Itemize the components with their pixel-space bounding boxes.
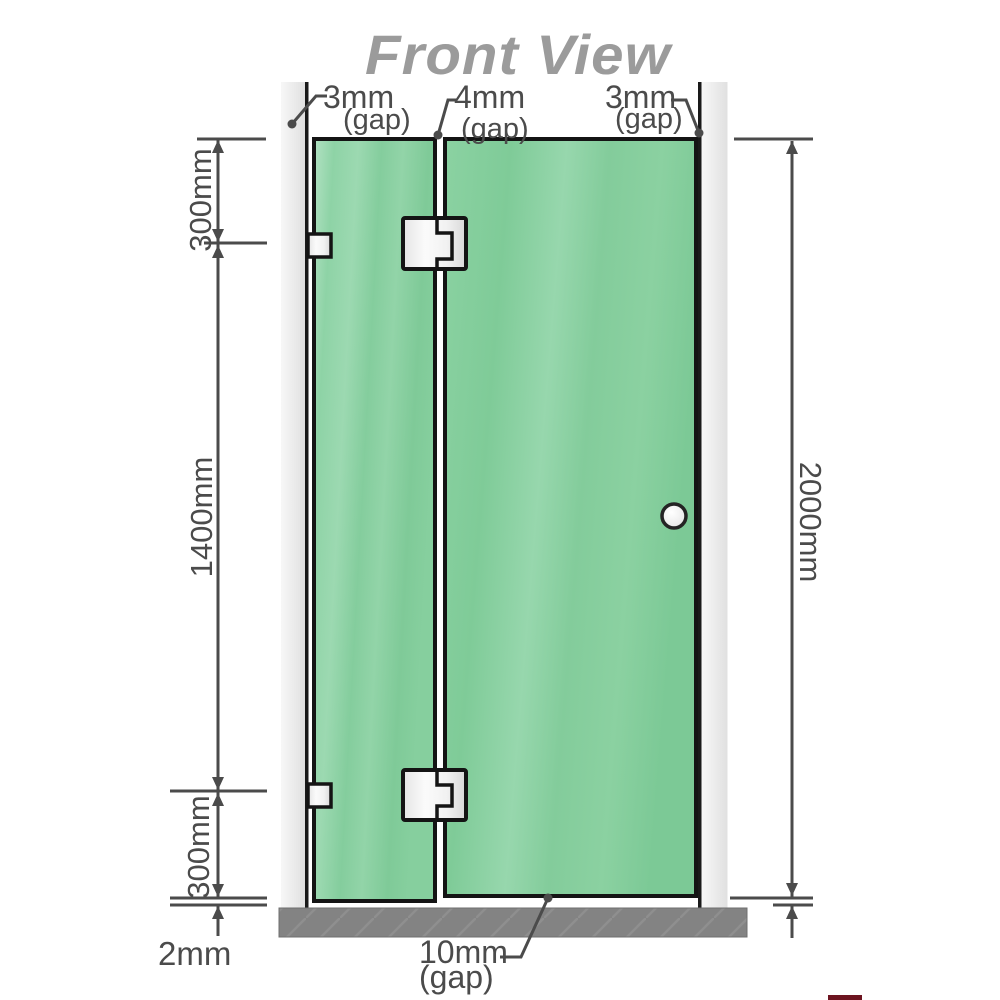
door-glass-panel	[445, 139, 696, 896]
door-knob	[662, 504, 686, 528]
right-wall-channel	[702, 82, 728, 908]
left-floor-gap-label: 2mm	[158, 937, 231, 970]
hinge-top	[403, 218, 466, 269]
top-gap-right-qualifier: (gap)	[615, 105, 683, 134]
bottom-door-gap-qualifier: (gap)	[419, 961, 494, 993]
diagram-canvas	[0, 0, 1000, 1000]
top-gap-middle-qualifier: (gap)	[461, 115, 529, 144]
top-gap-middle-value: 4mm	[454, 81, 525, 113]
shower-screen-front-view-diagram: Front View 3mm (gap) 4mm (gap) 3mm (gap)…	[0, 0, 1000, 1000]
right-dim-total-label: 2000mm	[792, 422, 828, 622]
hinge-bottom	[403, 770, 466, 820]
floor-slab	[279, 908, 747, 937]
top-gap-left-qualifier: (gap)	[343, 106, 411, 135]
left-dim-middle-label: 1400mm	[184, 417, 220, 617]
diagram-title: Front View	[365, 22, 671, 87]
right-wall-channel-edge	[698, 82, 702, 908]
left-dim-bottom-label: 300mm	[181, 747, 217, 947]
wall-bracket-top	[308, 234, 331, 257]
wall-bracket-bottom	[308, 784, 331, 807]
watermark-fragment	[828, 995, 862, 1000]
left-dim-top-label: 300mm	[183, 100, 219, 300]
left-wall-channel	[281, 82, 305, 908]
